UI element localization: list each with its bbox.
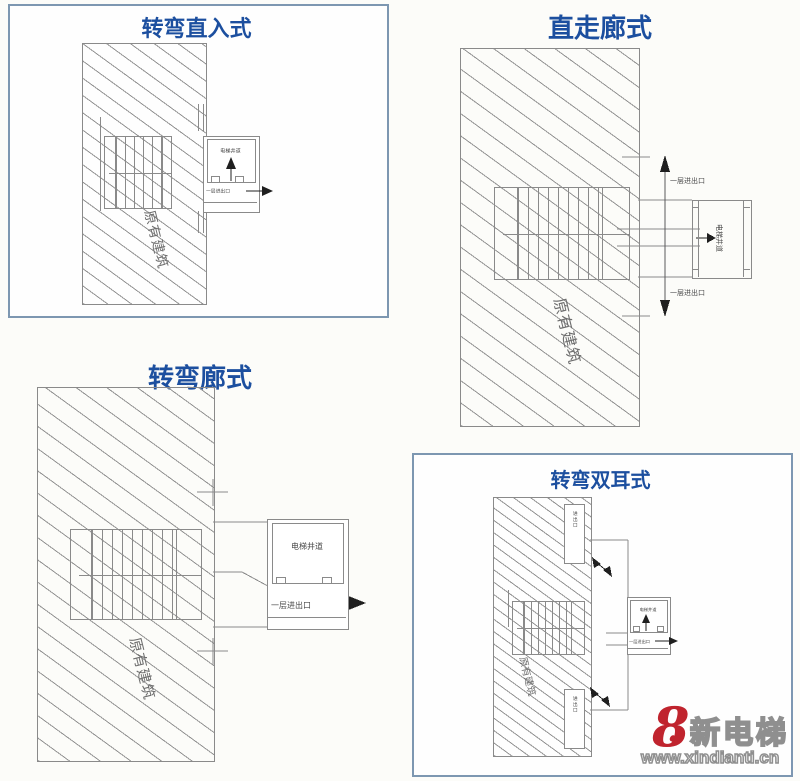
shaft-wall-cap: [743, 207, 750, 208]
shaft-door-post: [322, 577, 332, 584]
shaft-door-post: [211, 176, 220, 183]
stair-landing-line: [109, 173, 171, 174]
up-arrow-icon: [660, 155, 670, 172]
staircase: [512, 601, 585, 655]
brand-url: www.xindianti.cn: [641, 748, 779, 768]
ear-entrance-top: 进出口: [564, 504, 585, 564]
right-arrow-icon: [246, 184, 274, 198]
diagram-canvas: 转弯直入式 电梯井道 一层进出口 原有建筑 直走廊式: [0, 0, 800, 781]
wall-break-mark: [198, 211, 199, 233]
entry-double-arrow-icon: [592, 557, 612, 577]
elevator-shaft-cab: [272, 523, 344, 584]
exit-strip-line: [628, 648, 668, 649]
shaft-wall-cap: [743, 269, 750, 270]
stair-wall-line: [508, 590, 509, 627]
panel-straight-corridor-title: 直走廊式: [460, 8, 740, 45]
exit-label: 一层进出口: [629, 638, 650, 644]
stair-landing-line: [517, 628, 584, 629]
panel-double-ear-title: 转弯双耳式: [412, 464, 789, 493]
brand-name: 新电梯: [690, 708, 789, 752]
exit-strip-line: [268, 617, 346, 618]
stair-landing-line: [79, 575, 201, 576]
shaft-door-post: [276, 577, 286, 584]
panel-turn-direct-title: 转弯直入式: [8, 11, 385, 43]
up-arrow-icon: [640, 613, 652, 633]
right-arrow-icon: [655, 634, 683, 648]
exit-label: 一层进出口: [271, 600, 311, 611]
ear-bottom-label: 进出口: [571, 696, 578, 713]
down-arrow-icon: [660, 300, 670, 317]
wall-break-mark: [203, 104, 204, 131]
shaft-door-post: [633, 626, 640, 632]
shaft-label: 电梯井道: [272, 541, 342, 552]
shaft-door-post: [657, 626, 664, 632]
staircase: [70, 529, 202, 620]
ear-entrance-bottom: 进出口: [564, 689, 585, 749]
right-arrow-icon: [346, 595, 366, 611]
entry-double-arrow-icon: [590, 687, 610, 707]
exit-strip-line: [204, 202, 257, 203]
shaft-wall-cap: [692, 269, 699, 270]
wall-break-mark: [203, 211, 204, 233]
staircase: [104, 136, 172, 209]
shaft-wall-cap: [692, 207, 699, 208]
up-arrow-icon: [224, 156, 238, 182]
shaft-label: 电梯井道: [635, 606, 662, 612]
wall-break-mark: [198, 104, 199, 131]
shaft-label: 电梯井道: [209, 147, 252, 155]
shaft-wall-line: [698, 200, 699, 277]
exit-label-bottom: 一层进出口: [670, 288, 705, 298]
exit-label: 一层进出口: [206, 187, 241, 194]
shaft-wall-line: [743, 200, 744, 277]
stair-wall-line: [100, 117, 101, 211]
ear-top-label: 进出口: [571, 511, 578, 528]
exit-label-top: 一层进出口: [670, 176, 705, 186]
shaft-label: 电梯井道: [714, 210, 724, 266]
